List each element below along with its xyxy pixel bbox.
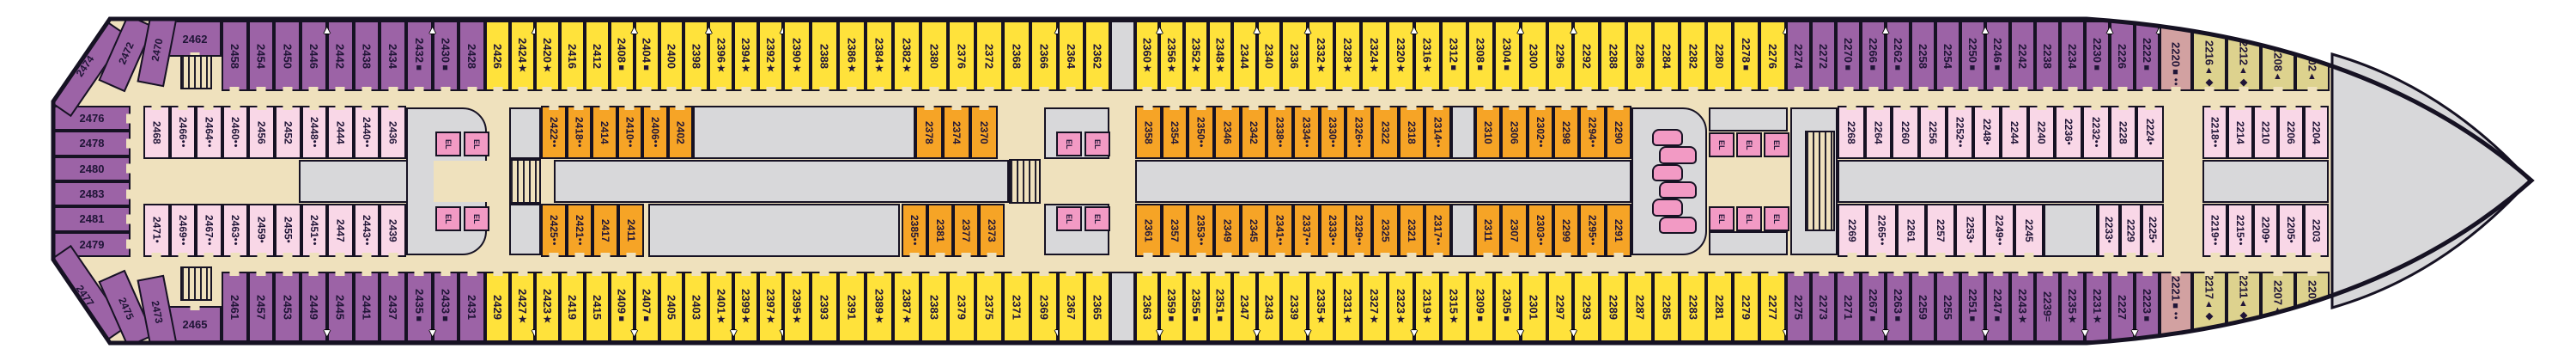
cabin-2465[interactable]: 2465 — [168, 306, 222, 342]
cabin-2205[interactable]: 2205• — [2278, 204, 2303, 257]
cabin-2221[interactable]: 2221■•• — [2160, 272, 2192, 342]
cabin-2405[interactable]: 2405 — [659, 272, 684, 342]
cabin-2381[interactable]: 2381 — [927, 204, 953, 257]
cabin-2424[interactable]: 2424★▲ — [510, 21, 535, 91]
cabin-2272[interactable]: 2272 — [1811, 21, 1836, 91]
cabin-2321[interactable]: 2321 — [1399, 204, 1425, 257]
cabin-2434[interactable]: 2434 — [380, 21, 406, 91]
cabin-2274[interactable]: 2274 — [1786, 21, 1811, 91]
cabin-door — [936, 253, 945, 259]
cabin-2260[interactable]: 2260 — [1892, 106, 1919, 159]
cabin-door — [1191, 270, 1200, 276]
cabin-2375[interactable]: 2375 — [975, 272, 1003, 342]
cabin-2409[interactable]: 2409■▼ — [610, 272, 635, 342]
cabin-number: 2336 — [1289, 44, 1300, 69]
cabin-number: 2378 — [924, 121, 934, 144]
cabin-2464[interactable]: 2464•• — [196, 106, 222, 159]
connecting-room-marker: ▼ — [2080, 327, 2090, 338]
cabin-number: 2202▲ — [2307, 46, 2318, 83]
cabin-2348[interactable]: 2348★ — [1208, 21, 1232, 91]
cabin-2345[interactable]: 2345 — [1241, 204, 1267, 257]
cabin-2329[interactable]: 2329•• — [1346, 204, 1372, 257]
cabin-number: 2346 — [1222, 121, 1232, 144]
connecting-room-marker: ▼ — [629, 327, 640, 338]
cabin-2261[interactable]: 2261 — [1897, 204, 1926, 257]
cabin-2349[interactable]: 2349 — [1214, 204, 1241, 257]
cabin-2426[interactable]: 2426 — [485, 21, 510, 91]
cabin-door — [178, 104, 187, 110]
cabin-2304[interactable]: 2304■▲ — [1494, 21, 1521, 91]
cabin-number: 2298 — [1561, 121, 1571, 144]
cabin-2307[interactable]: 2307 — [1501, 204, 1527, 257]
cabin-2417[interactable]: 2417 — [592, 204, 618, 257]
cabin-2353[interactable]: 2353•• — [1188, 204, 1214, 257]
cabin-2364[interactable]: 2364 — [1058, 21, 1084, 91]
cabin-2220[interactable]: 2220■•• — [2160, 21, 2192, 91]
cabin-2457[interactable]: 2457 — [248, 272, 275, 342]
cabin-2328[interactable]: 2328★ — [1334, 21, 1361, 91]
cabin-2393[interactable]: 2393 — [811, 272, 838, 342]
cabin-2278[interactable]: 2278■ — [1733, 21, 1759, 91]
cabin-2222[interactable]: 2222■▲ — [2135, 21, 2160, 91]
cabin-2423[interactable]: 2423★ — [535, 272, 560, 342]
cabin-2466[interactable]: 2466•• — [170, 106, 197, 159]
cabin-2238[interactable]: 2238 — [2035, 21, 2060, 91]
cabin-2326[interactable]: 2326•• — [1346, 106, 1372, 159]
cabin-2374[interactable]: 2374 — [943, 106, 970, 159]
cabin-2439[interactable]: 2439 — [380, 204, 406, 257]
cabin-2440[interactable]: 2440•• — [354, 106, 380, 159]
cabin-2336[interactable]: 2336▲ — [1281, 21, 1308, 91]
cabin-2344[interactable]: 2344▲ — [1232, 21, 1256, 91]
cabin-2265[interactable]: 2265•• — [1867, 204, 1896, 257]
cabin-number: 2300 — [1528, 44, 1540, 69]
cabin-2429[interactable]: 2429 — [485, 272, 510, 342]
cabin-2403[interactable]: 2403 — [683, 272, 708, 342]
cabin-2334[interactable]: 2334•• — [1293, 106, 1320, 159]
cabin-2217[interactable]: 2217▲◆ — [2192, 272, 2227, 342]
cabin-2277[interactable]: 2277▼ — [1759, 272, 1786, 342]
cabin-2218[interactable]: 2218•• — [2202, 106, 2227, 159]
cabin-number: 2457 — [256, 295, 267, 320]
cabin-2248[interactable]: 2248• — [1973, 106, 2001, 159]
cabin-door — [1993, 270, 2002, 276]
cabin-door — [930, 270, 939, 276]
cabin-2443[interactable]: 2443•• — [354, 204, 380, 257]
cabin-2427[interactable]: 2427★▼ — [510, 272, 535, 342]
cabin-2425[interactable]: 2425•• — [541, 204, 567, 257]
cabin-number: 2265•• — [1876, 215, 1886, 246]
cabin-door — [1562, 253, 1571, 259]
cabin-2290[interactable]: 2290 — [1606, 106, 1631, 159]
cabin-number: 2299 — [1561, 219, 1571, 242]
cabin-2266[interactable]: 2266■▲ — [1861, 21, 1886, 91]
cabin-2318[interactable]: 2318 — [1399, 106, 1425, 159]
cabin-2456[interactable]: 2456 — [248, 106, 275, 159]
cabin-2454[interactable]: 2454 — [248, 21, 275, 91]
cabin-2453[interactable]: 2453 — [274, 272, 301, 342]
cabin-2258[interactable]: 2258 — [1911, 21, 1935, 91]
cabin-2315[interactable]: 2315★ — [1441, 272, 1467, 342]
cabin-door — [962, 253, 971, 259]
cabin-2309[interactable]: 2309■ — [1467, 272, 1494, 342]
cabin-2314[interactable]: 2314•• — [1425, 106, 1451, 159]
cabin-2461[interactable]: 2461 — [222, 272, 248, 342]
cabin-2410[interactable]: 2410•• — [617, 106, 643, 159]
cabin-2419[interactable]: 2419 — [560, 272, 585, 342]
cabin-2214[interactable]: 2214 — [2227, 106, 2252, 159]
cabin-2333[interactable]: 2333•• — [1320, 204, 1346, 257]
cabin-2361[interactable]: 2361 — [1135, 204, 1162, 257]
cabin-2402[interactable]: 2402 — [668, 106, 694, 159]
cabin-2352[interactable]: 2352★ — [1184, 21, 1208, 91]
cabin-2421[interactable]: 2421•• — [567, 204, 592, 257]
cabin-2211[interactable]: 2211▲◆ — [2227, 272, 2261, 342]
cabin-door — [2018, 270, 2027, 276]
cabin-2385[interactable]: 2385•• — [902, 204, 927, 257]
cabin-2250[interactable]: 2250■▲ — [1960, 21, 1985, 91]
cabin-number: 2462 — [183, 33, 208, 46]
cabin-2322[interactable]: 2322 — [1372, 106, 1399, 159]
cabin-2285[interactable]: 2285 — [1653, 272, 1680, 342]
cabin-number: 2359■ — [1166, 289, 1177, 325]
cabin-door — [1476, 270, 1485, 276]
cabin-2378[interactable]: 2378 — [915, 106, 943, 159]
stairs-icon — [180, 55, 212, 89]
cabin-number: 2290 — [1613, 121, 1624, 144]
cabin-2383[interactable]: 2383 — [920, 272, 948, 342]
cabin-door — [549, 104, 558, 110]
cabin-2233[interactable]: 2233• — [2098, 204, 2120, 257]
cabin-2455[interactable]: 2455• — [275, 204, 301, 257]
cabin-2244[interactable]: 2244 — [2001, 106, 2028, 159]
cabin-2280[interactable]: 2280 — [1706, 21, 1733, 91]
cabin-2435[interactable]: 2435■▼ — [406, 272, 433, 342]
cabin-2298[interactable]: 2298 — [1553, 106, 1579, 159]
cabin-2209[interactable]: 2209• — [2253, 204, 2278, 257]
cabin-2452[interactable]: 2452 — [275, 106, 301, 159]
cabin-2229[interactable]: 2229 — [2120, 204, 2142, 257]
cabin-2338[interactable]: 2338•• — [1267, 106, 1293, 159]
cabin-door — [152, 104, 161, 110]
cabin-2363[interactable]: 2363▼ — [1135, 272, 1159, 342]
cabin-2327[interactable]: 2327★ — [1361, 272, 1388, 342]
cabin-2228[interactable]: 2228 — [2110, 106, 2137, 159]
cabin-2450[interactable]: 2450 — [274, 21, 301, 91]
cabin-2323[interactable]: 2323★▼ — [1388, 272, 1414, 342]
cabin-2355[interactable]: 2355■ — [1184, 272, 1208, 342]
cabin-2448[interactable]: 2448•• — [301, 106, 328, 159]
cabin-2289[interactable]: 2289 — [1600, 272, 1626, 342]
cabin-2420[interactable]: 2420★ — [535, 21, 560, 91]
cabin-2276[interactable]: 2276▲ — [1759, 21, 1786, 91]
cabin-2330[interactable]: 2330•• — [1320, 106, 1346, 159]
berth-symbol: ★ — [874, 313, 884, 325]
connecting-room-marker: ▲ — [1154, 25, 1164, 35]
cabin-2282[interactable]: 2282 — [1680, 21, 1706, 91]
cabin-2412[interactable]: 2412 — [585, 21, 610, 91]
cabin-2288[interactable]: 2288 — [1600, 21, 1626, 91]
cabin-2467[interactable]: 2467•• — [196, 204, 222, 257]
cabin-2444[interactable]: 2444 — [327, 106, 354, 159]
cabin-door — [1264, 87, 1273, 93]
cabin-2275[interactable]: 2275 — [1786, 272, 1811, 342]
cabin-2369[interactable]: 2369▼ — [1030, 272, 1058, 342]
cabin-2249[interactable]: 2249•• — [1984, 204, 2014, 257]
cabin-2366[interactable]: 2366▲ — [1030, 21, 1058, 91]
cabin-2415[interactable]: 2415 — [585, 272, 610, 342]
cabin-door — [1143, 87, 1152, 93]
cabin-2268[interactable]: 2268 — [1838, 106, 1865, 159]
berth-symbol: •• — [309, 238, 319, 247]
cabin-door — [2274, 270, 2283, 276]
cabin-2320[interactable]: 2320★▲ — [1388, 21, 1414, 91]
cabin-2312[interactable]: 2312■ — [1441, 21, 1467, 91]
cabin-2208[interactable]: 2208▲ — [2261, 21, 2295, 91]
cabin-2242[interactable]: 2242 — [2010, 21, 2035, 91]
cabin-2358[interactable]: 2358 — [1135, 106, 1162, 159]
cabin-number: 2310 — [1483, 121, 1493, 144]
cabin-2270[interactable]: 2270■ — [1836, 21, 1861, 91]
cabin-2418[interactable]: 2418•• — [567, 106, 592, 159]
cabin-2347[interactable]: 2347▼ — [1232, 272, 1256, 342]
cabin-number: 2219•• — [2210, 215, 2221, 246]
cabin-2357[interactable]: 2357 — [1162, 204, 1188, 257]
cabin-2227[interactable]: 2227▼ — [2110, 272, 2135, 342]
cabin-2411[interactable]: 2411 — [618, 204, 644, 257]
cabin-2416[interactable]: 2416 — [560, 21, 585, 91]
cabin-2259[interactable]: 2259 — [1911, 272, 1935, 342]
cabin-2436[interactable]: 2436 — [380, 106, 406, 159]
cabin-2386[interactable]: 2386★ — [838, 21, 866, 91]
cabin-2287[interactable]: 2287 — [1626, 272, 1653, 342]
cabin-2481[interactable]: 2481 — [53, 206, 131, 231]
cabin-2204[interactable]: 2204 — [2304, 106, 2329, 159]
cabin-2350[interactable]: 2350•• — [1188, 106, 1214, 159]
cabin-2458[interactable]: 2458 — [222, 21, 248, 91]
cabin-2331[interactable]: 2331★ — [1334, 272, 1361, 342]
cabin-2351[interactable]: 2351■ — [1208, 272, 1232, 342]
cabin-2462[interactable]: 2462 — [168, 21, 222, 57]
cabin-2438[interactable]: 2438 — [354, 21, 380, 91]
cabin-2236[interactable]: 2236• — [2055, 106, 2082, 159]
cabin-2446[interactable]: 2446▲ — [301, 21, 327, 91]
cabin-2483[interactable]: 2483 — [53, 181, 131, 206]
cabin-2216[interactable]: 2216▲◆ — [2192, 21, 2227, 91]
cabin-2437[interactable]: 2437 — [380, 272, 406, 342]
cabin-2370[interactable]: 2370 — [970, 106, 998, 159]
cabin-2428[interactable]: 2428 — [459, 21, 485, 91]
cabin-door — [1893, 87, 1903, 93]
cabin-2305[interactable]: 2305■▼ — [1494, 272, 1521, 342]
cabin-2377[interactable]: 2377 — [953, 204, 979, 257]
cabin-2341[interactable]: 2341•• — [1267, 204, 1293, 257]
cabin-number: 2368 — [1012, 44, 1023, 69]
cabin-2390[interactable]: 2390★ — [783, 21, 811, 91]
cabin-number: 2396★ — [715, 38, 726, 75]
cabin-2391[interactable]: 2391 — [838, 272, 866, 342]
open-area — [1451, 106, 1475, 159]
cabin-door — [2142, 87, 2152, 93]
cabin-door — [925, 104, 934, 110]
cabin-2283[interactable]: 2283 — [1680, 272, 1706, 342]
connecting-room-marker: ▼ — [1880, 327, 1891, 338]
cabin-2400[interactable]: 2400 — [659, 21, 684, 91]
cabin-number: 2426 — [492, 44, 503, 69]
cabin-2240[interactable]: 2240 — [2028, 106, 2056, 159]
cabin-2376[interactable]: 2376 — [948, 21, 975, 91]
cabin-2273[interactable]: 2273 — [1811, 272, 1836, 342]
cabin-2281[interactable]: 2281 — [1706, 272, 1733, 342]
cabin-2372[interactable]: 2372 — [975, 21, 1003, 91]
cabin-2271[interactable]: 2271 — [1836, 272, 1861, 342]
cabin-2295[interactable]: 2295•• — [1579, 204, 1605, 257]
cabin-2441[interactable]: 2441 — [354, 272, 380, 342]
connecting-room-marker: ▲ — [1252, 25, 1262, 35]
cabin-2267[interactable]: 2267■▼ — [1861, 272, 1886, 342]
cabin-2212[interactable]: 2212▲◆ — [2227, 21, 2261, 91]
cabin-2401[interactable]: 2401★▼ — [708, 272, 733, 342]
cabin-2207[interactable]: 2207▲ — [2261, 272, 2295, 342]
cabin-2311[interactable]: 2311 — [1475, 204, 1501, 257]
cabin-2296[interactable]: 2296▲ — [1547, 21, 1574, 91]
cabin-2468[interactable]: 2468 — [143, 106, 170, 159]
cabin-2230[interactable]: 2230■▲ — [2085, 21, 2110, 91]
cabin-2251[interactable]: 2251■▼ — [1960, 272, 1985, 342]
cabin-2382[interactable]: 2382★ — [893, 21, 920, 91]
cabin-2279[interactable]: 2279 — [1733, 272, 1759, 342]
cabin-2234[interactable]: 2234 — [2060, 21, 2085, 91]
cabin-door — [257, 270, 266, 276]
cabin-2389[interactable]: 2389★ — [866, 272, 893, 342]
cabin-2354[interactable]: 2354 — [1162, 106, 1188, 159]
cabin-door — [2210, 104, 2220, 110]
cabin-2431[interactable]: 2431 — [459, 272, 485, 342]
cabin-2325[interactable]: 2325 — [1372, 204, 1399, 257]
cabin-2480[interactable]: 2480 — [53, 156, 131, 181]
cabin-2203[interactable]: 2203 — [2304, 204, 2329, 257]
cabin-2478[interactable]: 2478 — [53, 131, 131, 156]
cabin-number: 2434 — [387, 44, 398, 69]
cabin-2252[interactable]: 2252•• — [1947, 106, 1974, 159]
cabin-2243[interactable]: 2243★ — [2010, 272, 2035, 342]
cabin-2291[interactable]: 2291 — [1606, 204, 1631, 257]
cabin-2303[interactable]: 2303•• — [1528, 204, 1553, 257]
cabin-2337[interactable]: 2337•• — [1293, 204, 1320, 257]
cabin-2235[interactable]: 2235★▼ — [2060, 272, 2085, 342]
cabin-number: 2481 — [80, 212, 105, 225]
cabin-2373[interactable]: 2373 — [979, 204, 1005, 257]
cabin-2219[interactable]: 2219•• — [2202, 204, 2227, 257]
cabin-2206[interactable]: 2206 — [2278, 106, 2303, 159]
berth-symbol: ■ — [1868, 63, 1878, 74]
cabin-2398[interactable]: 2398▲ — [683, 21, 708, 91]
cabin-2202[interactable]: 2202▲ — [2295, 21, 2330, 91]
cabin-2317[interactable]: 2317•• — [1425, 204, 1451, 257]
cabin-2284[interactable]: 2284 — [1653, 21, 1680, 91]
cabin-2449[interactable]: 2449▼ — [301, 272, 327, 342]
cabin-2297[interactable]: 2297▼ — [1547, 272, 1574, 342]
cabin-2360[interactable]: 2360★▲ — [1135, 21, 1159, 91]
cabin-2388[interactable]: 2388 — [811, 21, 838, 91]
cabin-2225[interactable]: 2225• — [2142, 204, 2164, 257]
cabin-2406[interactable]: 2406•• — [642, 106, 668, 159]
cabin-run-r2_e: 231023062302••22982294••2290 — [1475, 106, 1631, 159]
cabin-2447[interactable]: 2447 — [327, 204, 354, 257]
cabin-2346[interactable]: 2346 — [1214, 106, 1241, 159]
cabin-2264[interactable]: 2264 — [1865, 106, 1893, 159]
cabin-2308[interactable]: 2308■ — [1467, 21, 1494, 91]
cabin-2459[interactable]: 2459• — [248, 204, 275, 257]
cabin-2368[interactable]: 2368 — [1003, 21, 1030, 91]
cabin-2362[interactable]: 2362 — [1084, 21, 1111, 91]
cabin-2342[interactable]: 2342 — [1241, 106, 1267, 159]
cabin-2245[interactable]: 2245 — [2014, 204, 2044, 257]
cabin-2299[interactable]: 2299 — [1553, 204, 1579, 257]
cabin-2387[interactable]: 2387★ — [893, 272, 920, 342]
cabin-2384[interactable]: 2384★ — [866, 21, 893, 91]
cabin-2379[interactable]: 2379 — [948, 272, 975, 342]
cabin-2395[interactable]: 2395★ — [783, 272, 811, 342]
cabin-2253[interactable]: 2253• — [1955, 204, 1984, 257]
cabin-2365[interactable]: 2365 — [1084, 272, 1111, 342]
berth-symbol: ★ — [517, 62, 527, 74]
cabin-2201[interactable]: 2201▲ — [2295, 272, 2330, 342]
cabin-2463[interactable]: 2463•• — [222, 204, 249, 257]
cabin-number: 2324★ — [1369, 38, 1380, 75]
cabin-2286[interactable]: 2286 — [1626, 21, 1653, 91]
berth-symbol: • — [2104, 240, 2114, 244]
cabin-2408[interactable]: 2408■▲ — [610, 21, 635, 91]
cabin-2239[interactable]: 2239= — [2035, 272, 2060, 342]
cabin-2422[interactable]: 2422•• — [541, 106, 567, 159]
cabin-number: 2230■ — [2092, 38, 2103, 74]
cabin-number: 2323★ — [1395, 289, 1406, 326]
cabin-2255[interactable]: 2255 — [1935, 272, 1960, 342]
cabin-2451[interactable]: 2451•• — [301, 204, 328, 257]
cabin-2339[interactable]: 2339▼ — [1281, 272, 1308, 342]
cabin-2256[interactable]: 2256 — [1919, 106, 1947, 159]
connecting-room-marker: ▲ — [322, 25, 332, 35]
cabin-2397[interactable]: 2397★▼ — [758, 272, 783, 342]
cabin-2367[interactable]: 2367 — [1058, 272, 1084, 342]
cabin-door — [1328, 104, 1338, 110]
cabin-2392[interactable]: 2392★▲ — [758, 21, 783, 91]
cabin-2294[interactable]: 2294•• — [1579, 106, 1605, 159]
cabin-2232[interactable]: 2232•• — [2082, 106, 2110, 159]
cabin-2257[interactable]: 2257 — [1926, 204, 1955, 257]
cabin-2324[interactable]: 2324★ — [1361, 21, 1388, 91]
cabin-2302[interactable]: 2302•• — [1528, 106, 1553, 159]
cabin-2215[interactable]: 2215•• — [2227, 204, 2252, 257]
cabin-number: 2395★ — [792, 289, 803, 326]
cabin-2471[interactable]: 2471• — [143, 204, 170, 257]
cabin-2432[interactable]: 2432■▲ — [406, 21, 433, 91]
cabin-2460[interactable]: 2460•• — [222, 106, 249, 159]
cabin-2371[interactable]: 2371 — [1003, 272, 1030, 342]
cabin-2394[interactable]: 2394★ — [733, 21, 758, 91]
cabin-2469[interactable]: 2469•• — [170, 204, 197, 257]
cabin-2224[interactable]: 2224• — [2136, 106, 2164, 159]
cabin-2414[interactable]: 2414 — [592, 106, 617, 159]
cabin-2306[interactable]: 2306 — [1501, 106, 1527, 159]
cabin-2254[interactable]: 2254 — [1935, 21, 1960, 91]
elevator: EL — [1056, 132, 1082, 156]
cabin-2310[interactable]: 2310 — [1475, 106, 1501, 159]
cabin-2380[interactable]: 2380 — [920, 21, 948, 91]
cabin-2210[interactable]: 2210 — [2253, 106, 2278, 159]
cabin-2269[interactable]: 2269 — [1838, 204, 1867, 257]
